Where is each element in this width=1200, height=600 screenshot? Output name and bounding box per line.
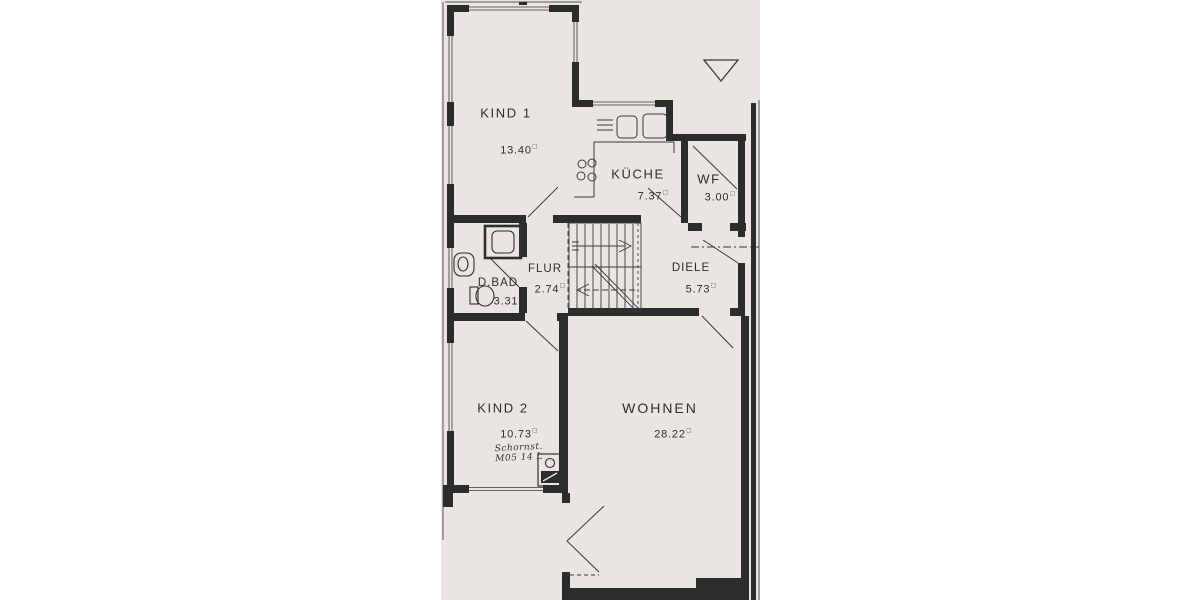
room-label-dbad: D.BAD [478,277,518,289]
stove-burner-icon [578,160,586,168]
room-area-diele: 5.73□ [686,283,717,296]
sqm-icon: □ [560,283,565,290]
window-glazing-lines [449,7,655,491]
sqm-icon: □ [533,144,538,151]
floorplan-drawing [441,0,760,600]
door-wohnen [702,316,733,348]
room-label-diele: DIELE [672,262,710,274]
room-label-wf: WF [697,172,720,187]
sqm-icon: □ [730,191,735,198]
room-label-wohnen: WOHNEN [622,400,698,416]
room-area-wohnen: 28.22□ [654,428,692,441]
entrance-triangle-icon [704,60,738,81]
room-area-kueche: 7.37□ [638,190,669,203]
sqm-icon: □ [687,428,692,435]
room-area-kind1: 13.40□ [500,144,538,157]
room-area-dbad: 3.31□ [494,295,525,308]
french-door-wohnen [567,506,604,572]
washbasin-icon [454,253,474,276]
kitchen-fixtures [574,114,674,197]
sqm-icon: □ [519,295,524,302]
sqm-icon: □ [533,428,538,435]
room-area-flur: 2.74□ [535,283,566,296]
room-label-flur: FLUR [528,263,562,275]
stove-burner-icon [588,173,596,181]
sink-basin-icon [643,114,667,138]
sqm-icon: □ [711,283,716,290]
sink-drainer-icon [597,120,613,130]
stove-burner-icon [588,159,596,167]
door-kind2 [526,321,558,351]
room-label-kind2: KIND 2 [477,401,529,416]
room-area-kind2: 10.73□ [500,428,538,441]
sqm-icon: □ [663,190,668,197]
room-area-wf: 3.00□ [705,191,736,204]
room-label-kueche: KÜCHE [611,167,665,182]
door-kind1 [528,187,558,217]
staircase [569,223,641,312]
door-entrance [703,240,738,263]
door-swings [489,146,759,575]
sink-basin-icon [617,116,637,138]
chimney-note: Schornst. M05 14 L [495,442,544,464]
screenshot-canvas: KIND 1 13.40□ KÜCHE 7.37□ WF 3.00□ FLUR … [0,0,1200,600]
room-label-kind1: KIND 1 [480,106,532,121]
stove-burner-icon [577,172,585,180]
floorplan-scan: KIND 1 13.40□ KÜCHE 7.37□ WF 3.00□ FLUR … [441,0,760,600]
